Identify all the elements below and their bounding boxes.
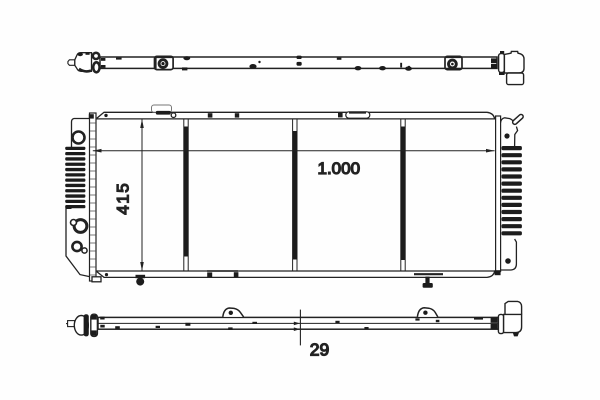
svg-text:29: 29: [310, 340, 329, 360]
svg-text:1.000: 1.000: [318, 159, 361, 178]
svg-text:415: 415: [114, 182, 133, 215]
